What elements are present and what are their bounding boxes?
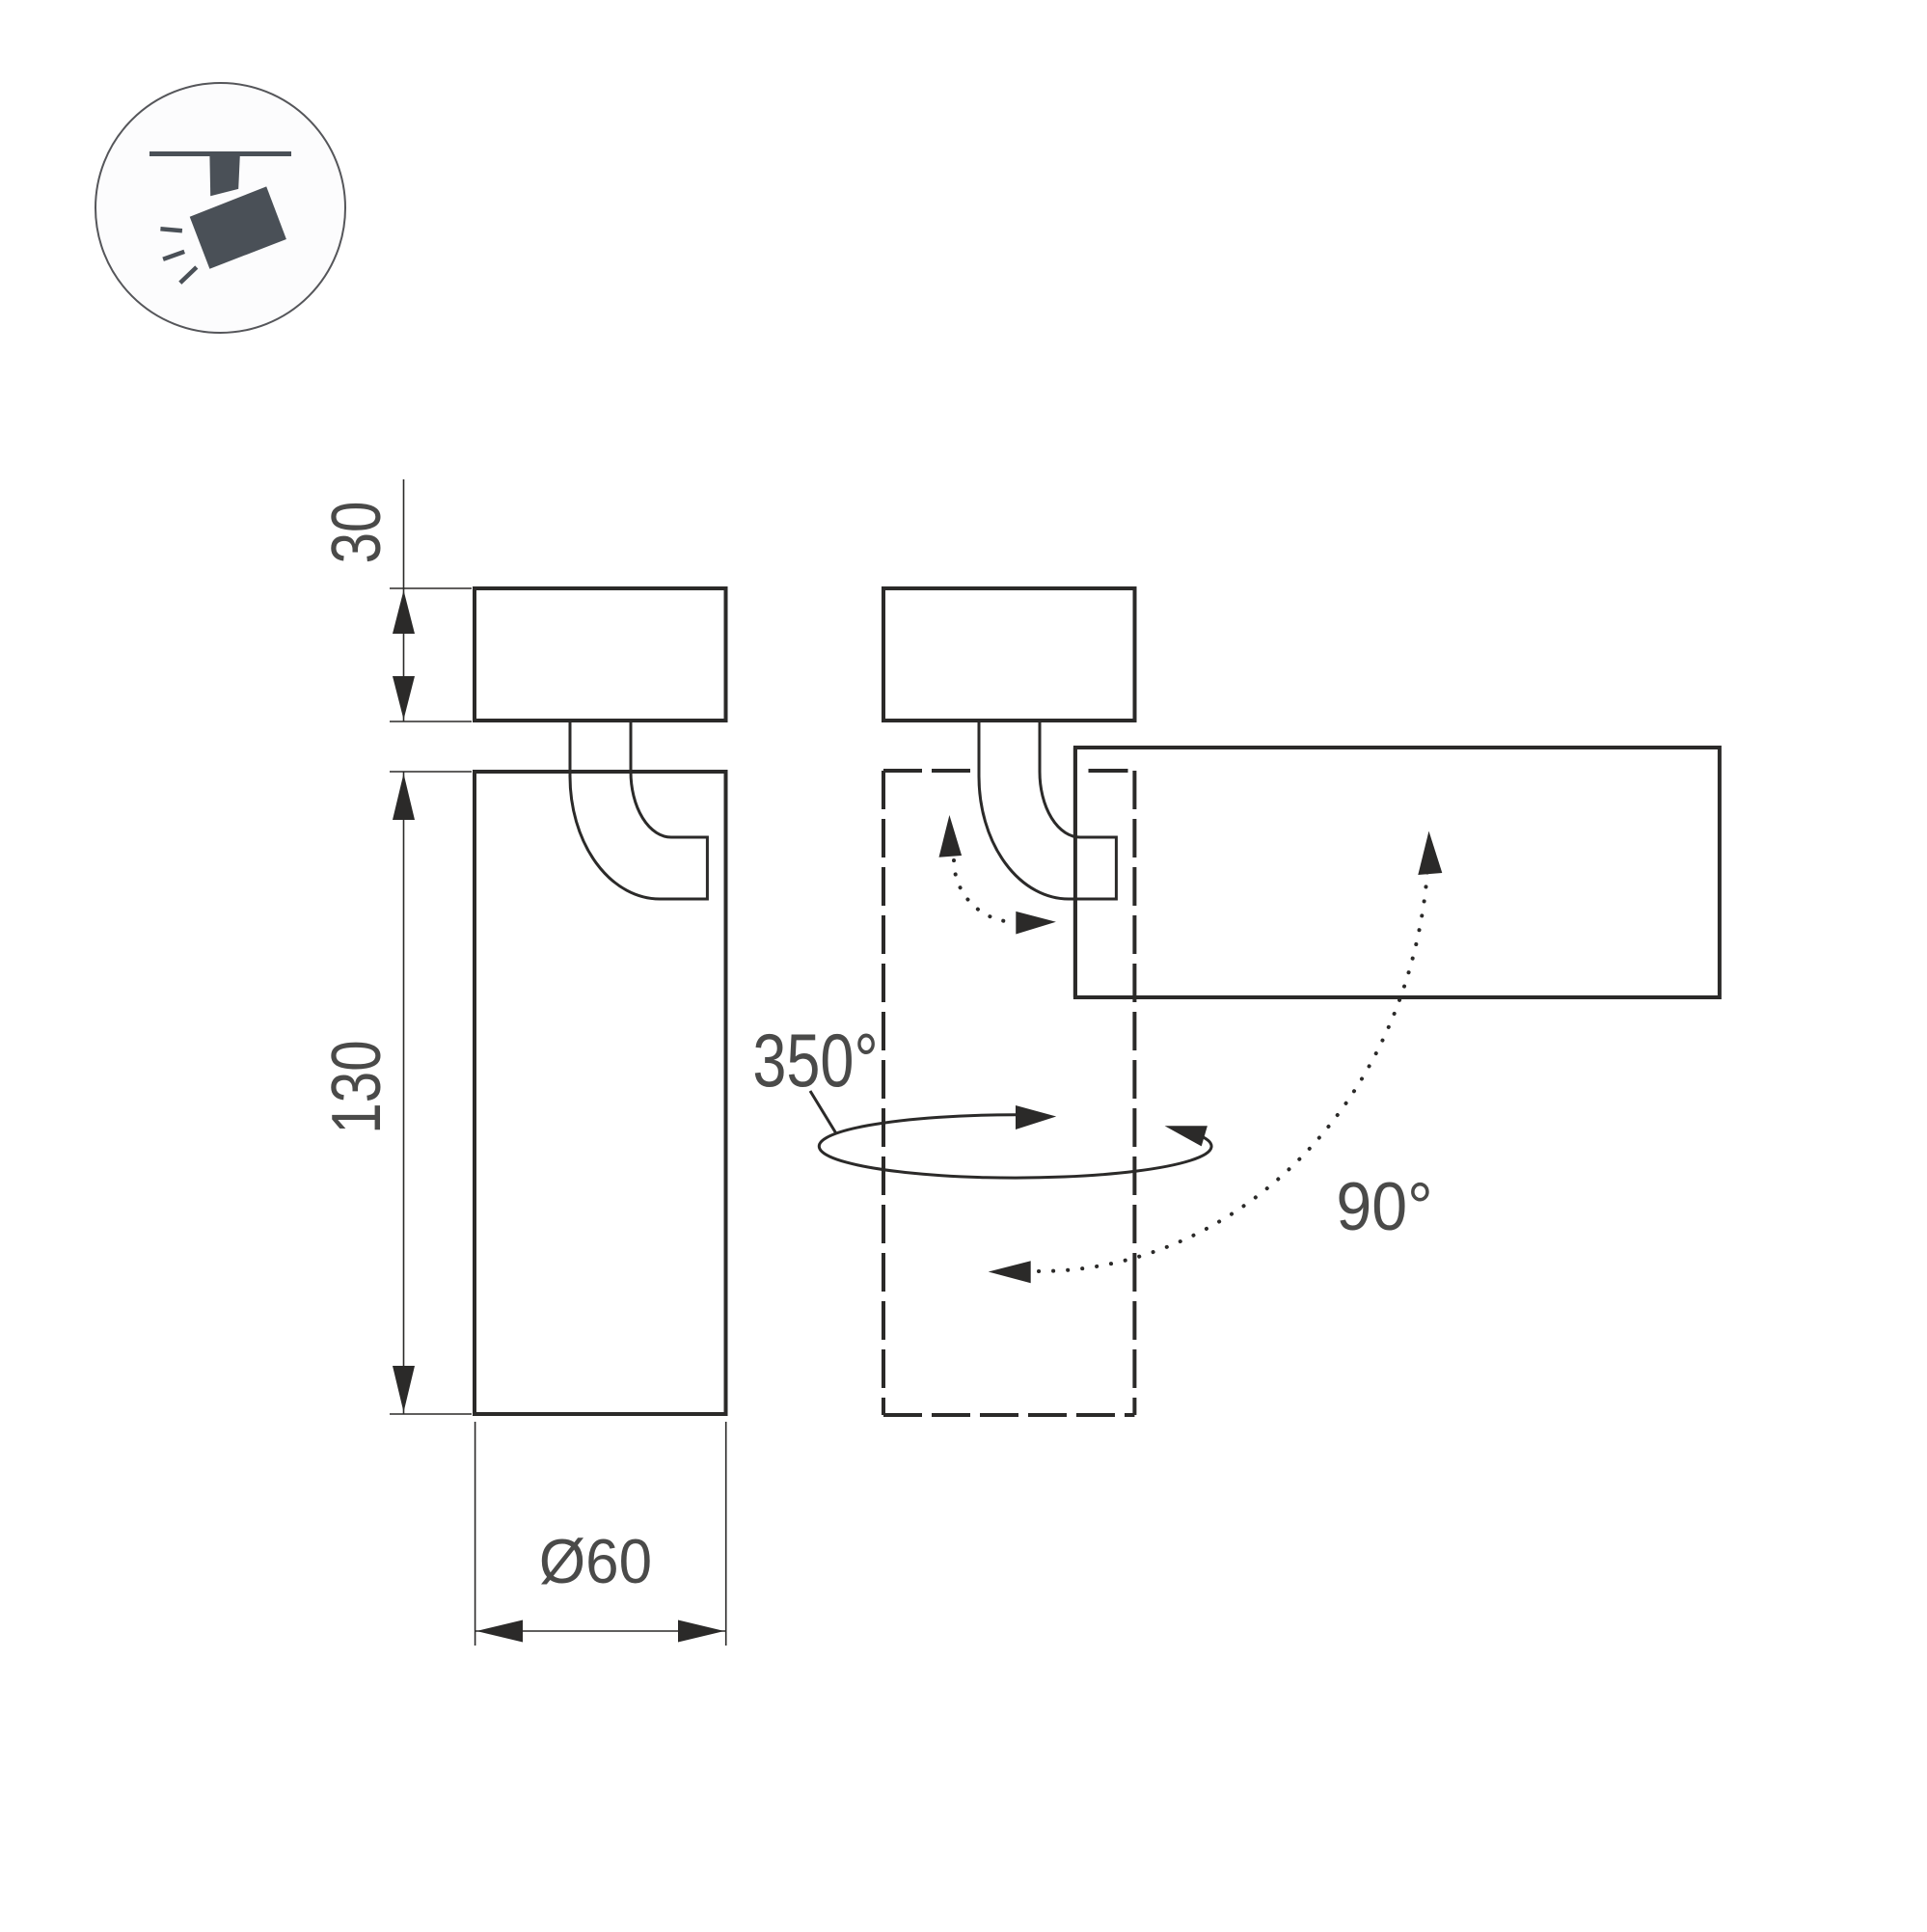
svg-text:Ø60: Ø60: [539, 1527, 652, 1597]
svg-text:350°: 350°: [752, 1019, 878, 1102]
svg-text:30: 30: [316, 502, 395, 564]
svg-text:130: 130: [316, 1040, 395, 1133]
svg-text:90°: 90°: [1336, 1168, 1432, 1244]
